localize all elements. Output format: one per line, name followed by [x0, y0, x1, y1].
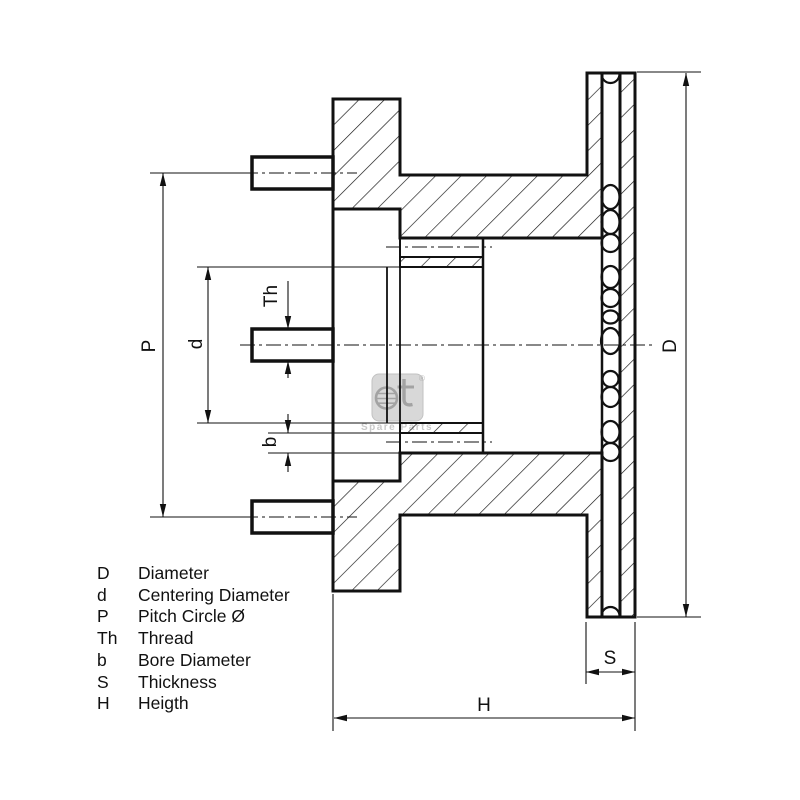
- upper-hub-section: [333, 73, 602, 238]
- legend-row-diameter: DDiameter: [97, 563, 290, 585]
- lower-thin-web: [400, 423, 483, 433]
- dimension-thickness: S: [586, 622, 635, 731]
- upper-thin-web: [400, 257, 483, 267]
- legend-key: b: [97, 650, 138, 672]
- dimension-outer-diameter: D: [637, 72, 701, 617]
- label-D: D: [660, 339, 681, 353]
- label-P: P: [139, 340, 160, 353]
- label-H: H: [477, 695, 491, 716]
- registered-mark: ®: [419, 374, 425, 383]
- label-Th: Th: [261, 285, 282, 307]
- legend-key: D: [97, 563, 138, 585]
- legend-row-centering-diameter: dCentering Diameter: [97, 585, 290, 607]
- legend-label: Thickness: [138, 672, 217, 692]
- legend-key: P: [97, 606, 138, 628]
- legend-row-height: HHeigth: [97, 693, 290, 715]
- legend-row-thickness: SThickness: [97, 672, 290, 694]
- legend-label: Heigth: [138, 693, 189, 713]
- legend-row-bore-diameter: bBore Diameter: [97, 650, 290, 672]
- legend-label: Bore Diameter: [138, 650, 251, 670]
- legend-key: d: [97, 585, 138, 607]
- legend-key: S: [97, 672, 138, 694]
- legend-label: Centering Diameter: [138, 585, 290, 605]
- legend-label: Thread: [138, 628, 193, 648]
- lower-hub-section: [333, 453, 602, 617]
- label-S: S: [604, 648, 617, 669]
- technical-drawing-page: ® Spare Parts: [0, 0, 800, 800]
- legend-label: Diameter: [138, 563, 209, 583]
- legend-row-pitch-circle: PPitch Circle Ø: [97, 606, 290, 628]
- legend-key: H: [97, 693, 138, 715]
- legend: DDiameter dCentering Diameter PPitch Cir…: [97, 563, 290, 715]
- legend-label: Pitch Circle Ø: [138, 606, 245, 626]
- label-b: b: [260, 437, 281, 448]
- legend-key: Th: [97, 628, 138, 650]
- legend-row-thread: ThThread: [97, 628, 290, 650]
- label-d: d: [186, 339, 207, 350]
